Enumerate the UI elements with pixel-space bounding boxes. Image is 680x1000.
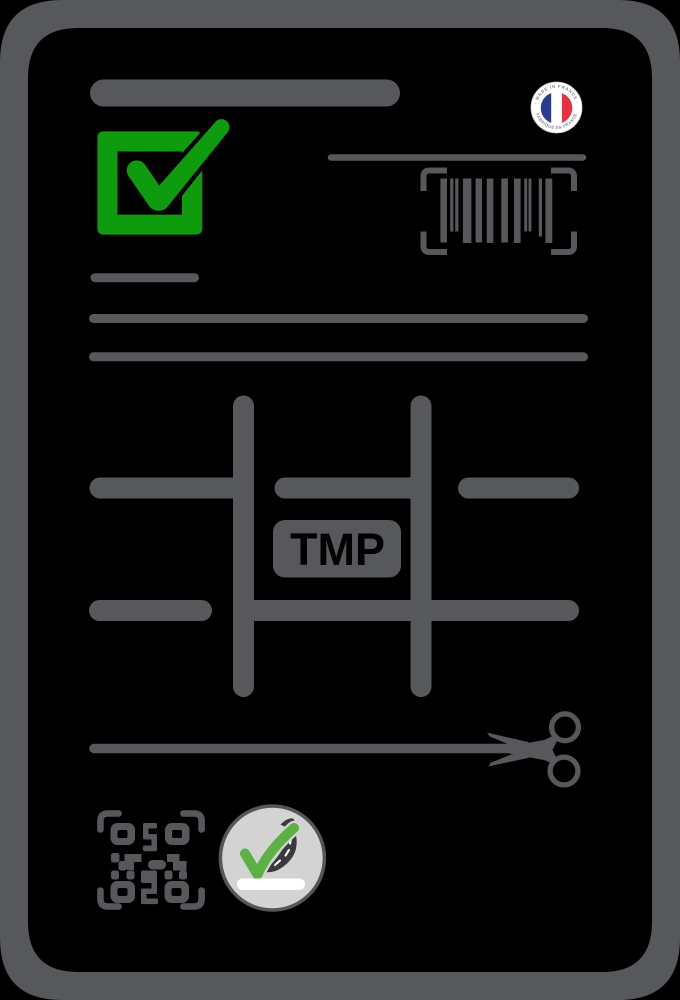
svg-text:TMP: TMP bbox=[290, 524, 385, 575]
